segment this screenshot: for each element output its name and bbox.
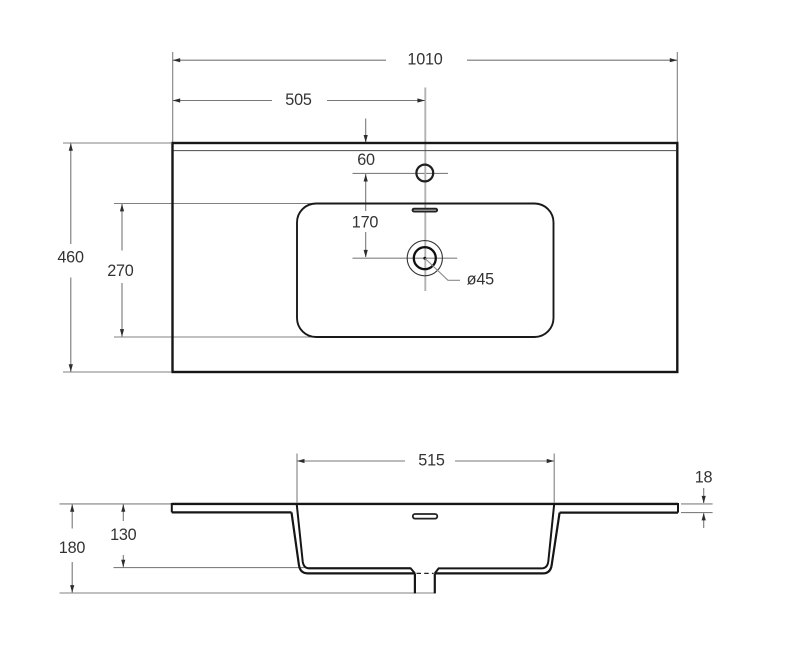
svg-text:18: 18 bbox=[695, 469, 713, 487]
svg-text:515: 515 bbox=[418, 451, 445, 469]
svg-text:180: 180 bbox=[59, 539, 86, 557]
svg-text:170: 170 bbox=[352, 214, 379, 232]
svg-text:505: 505 bbox=[285, 91, 312, 109]
svg-text:130: 130 bbox=[110, 526, 137, 544]
svg-text:270: 270 bbox=[107, 262, 134, 280]
svg-text:1010: 1010 bbox=[407, 50, 442, 68]
svg-text:ø45: ø45 bbox=[467, 271, 494, 289]
svg-text:460: 460 bbox=[57, 249, 84, 267]
svg-text:60: 60 bbox=[357, 151, 375, 169]
